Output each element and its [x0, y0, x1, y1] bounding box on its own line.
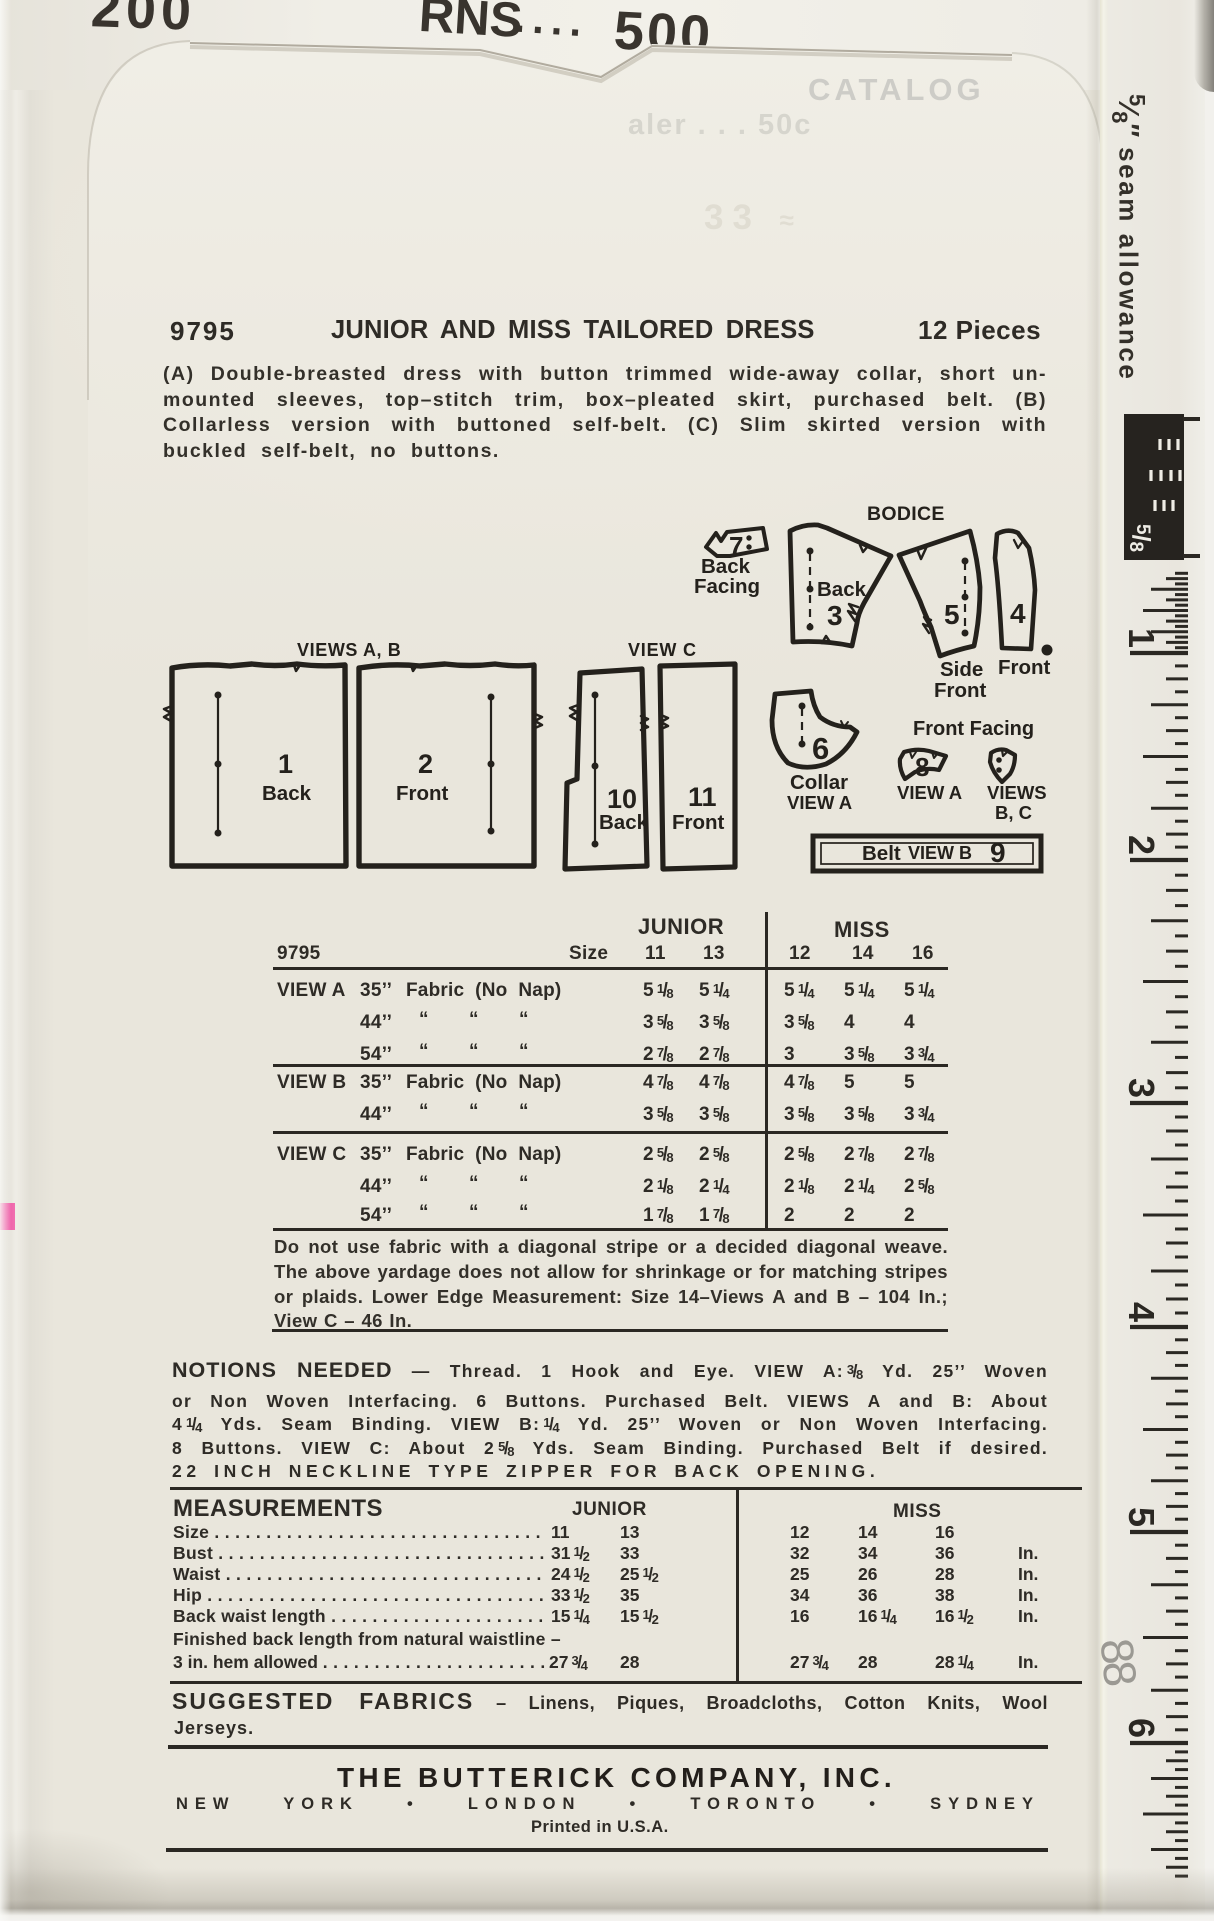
svg-text:VIEW A: VIEW A [897, 782, 962, 803]
svg-text:Collar: Collar [790, 771, 848, 794]
svg-text:Front Facing: Front Facing [913, 718, 1034, 740]
svg-text:Side: Side [940, 658, 983, 681]
svg-text:5: 5 [944, 599, 960, 630]
svg-text:6: 6 [812, 731, 829, 766]
svg-text:2: 2 [418, 749, 433, 779]
svg-text:VIEW B: VIEW B [908, 843, 972, 863]
svg-text:VIEWS A, B: VIEWS A, B [297, 640, 401, 660]
svg-text:4: 4 [1010, 598, 1026, 629]
svg-text:8: 8 [915, 752, 929, 782]
svg-text:Front: Front [672, 811, 725, 834]
svg-text:Belt: Belt [862, 842, 901, 865]
svg-text:10: 10 [607, 784, 637, 814]
svg-text:Back: Back [262, 782, 312, 805]
svg-text:1: 1 [278, 749, 293, 779]
svg-text:Front: Front [998, 656, 1051, 679]
svg-text:VIEWS: VIEWS [987, 782, 1047, 803]
svg-text:11: 11 [688, 782, 717, 812]
svg-text:Back: Back [599, 811, 649, 834]
svg-text:Facing: Facing [694, 575, 760, 598]
svg-text:VIEW C: VIEW C [628, 640, 697, 660]
svg-text:BODICE: BODICE [867, 503, 945, 525]
svg-text:9: 9 [990, 837, 1006, 868]
svg-text:Front: Front [934, 679, 987, 702]
svg-text:B, C: B, C [995, 802, 1032, 823]
svg-text:VIEW A: VIEW A [787, 792, 852, 813]
svg-text:Back: Back [817, 578, 867, 601]
svg-text:Front: Front [396, 782, 449, 805]
svg-text:3: 3 [827, 600, 843, 631]
